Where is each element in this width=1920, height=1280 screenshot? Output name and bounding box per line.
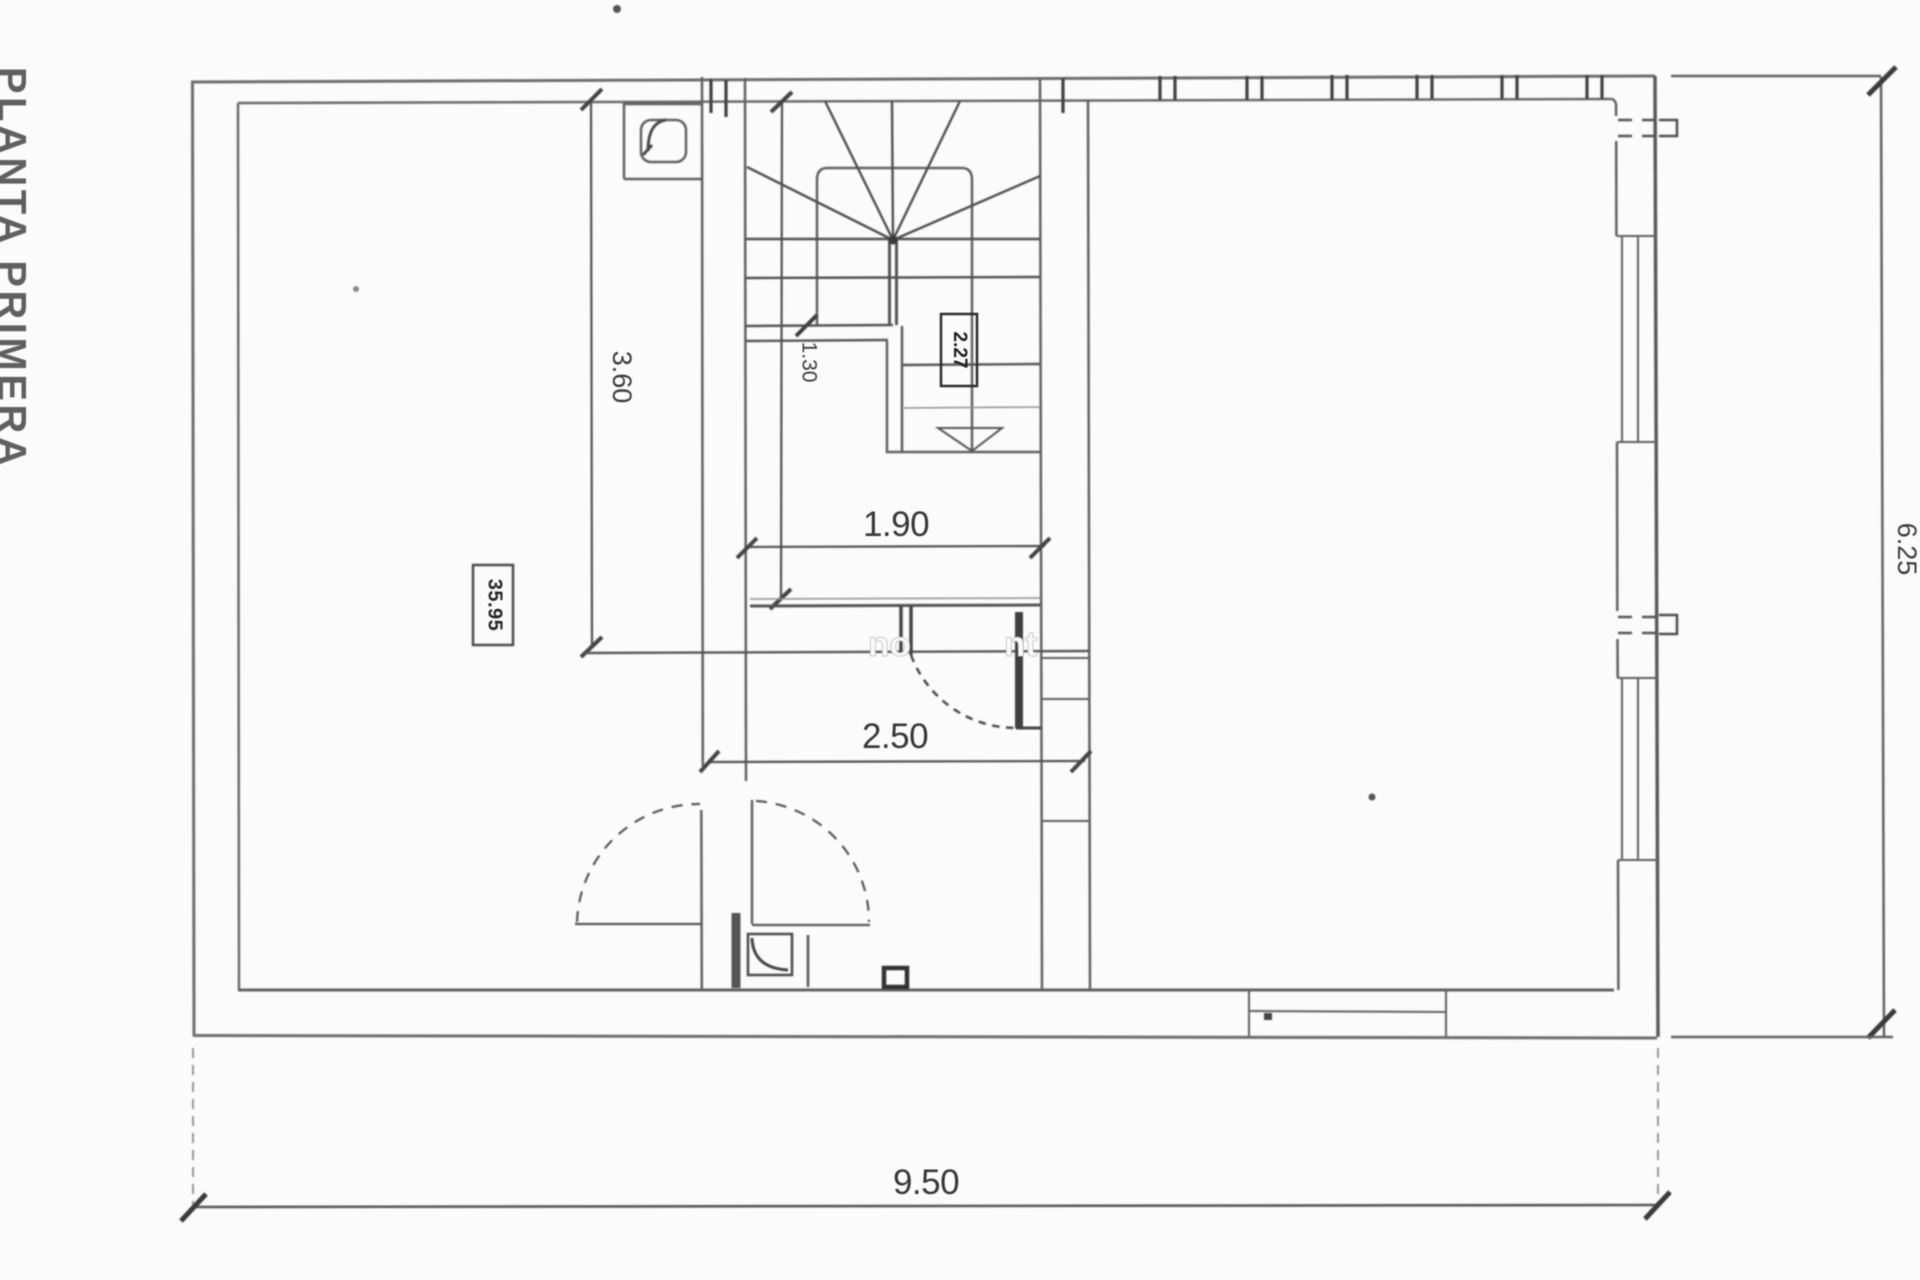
svg-text:2.27: 2.27 [949,332,970,369]
svg-text:nt: nt [1004,625,1037,664]
svg-text:1.30: 1.30 [797,342,820,383]
svg-text:1.90: 1.90 [863,505,929,544]
svg-text:6.25: 6.25 [1892,523,1920,576]
svg-text:PLANTA PRIMERA: PLANTA PRIMERA [0,67,33,469]
svg-text:9.50: 9.50 [893,1163,959,1202]
svg-text:35.95: 35.95 [484,579,506,632]
svg-text:2.50: 2.50 [862,717,928,756]
svg-text:no: no [868,625,911,664]
svg-text:3.60: 3.60 [607,351,637,404]
